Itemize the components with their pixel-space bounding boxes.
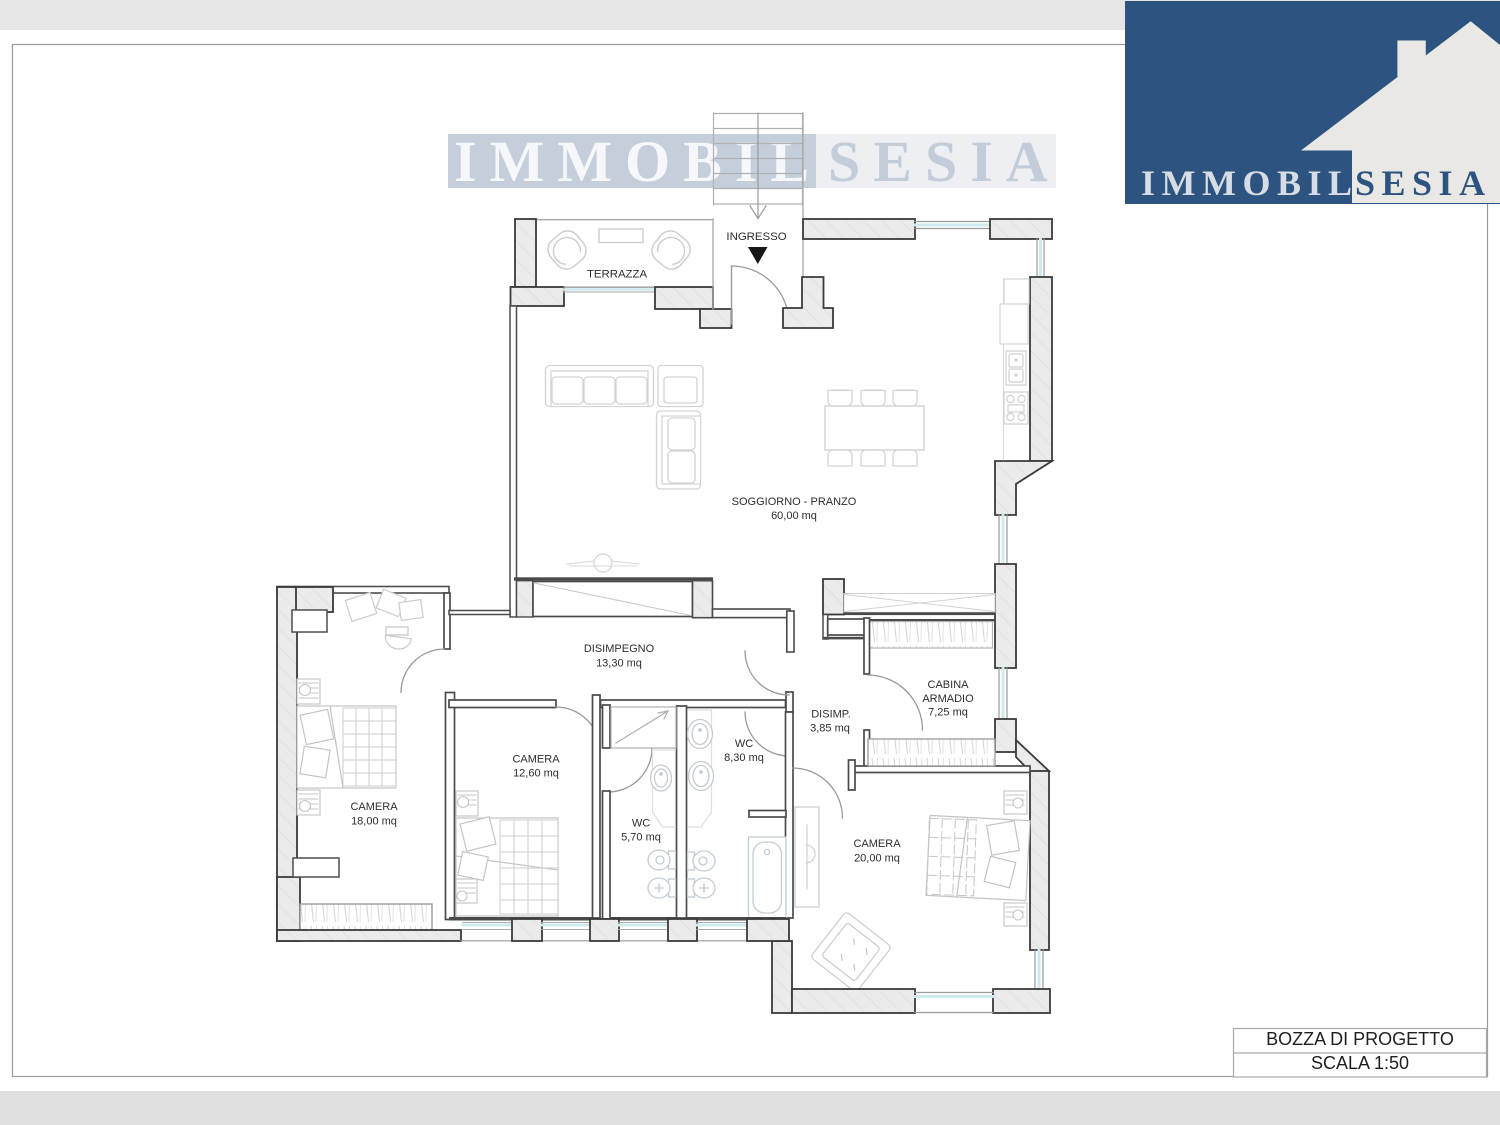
- svg-text:12,60 mq: 12,60 mq: [513, 768, 559, 780]
- svg-text:CAMERA: CAMERA: [512, 754, 560, 766]
- svg-text:5,70 mq: 5,70 mq: [621, 832, 661, 844]
- svg-text:SCALA 1:50: SCALA 1:50: [1311, 1053, 1409, 1073]
- svg-text:SOGGIORNO - PRANZO: SOGGIORNO - PRANZO: [732, 496, 857, 508]
- svg-text:60,00 mq: 60,00 mq: [771, 510, 817, 522]
- svg-text:IMMOBIL: IMMOBIL: [454, 129, 822, 194]
- svg-text:8,30 mq: 8,30 mq: [724, 752, 764, 764]
- svg-text:SESIA: SESIA: [1355, 163, 1492, 203]
- svg-text:CABINA: CABINA: [928, 679, 970, 691]
- svg-text:TERRAZZA: TERRAZZA: [587, 269, 648, 281]
- svg-text:IMMOBIL: IMMOBIL: [1141, 163, 1359, 203]
- svg-text:DISIMP.: DISIMP.: [811, 709, 851, 721]
- svg-text:BOZZA DI PROGETTO: BOZZA DI PROGETTO: [1266, 1029, 1454, 1049]
- svg-text:INGRESSO: INGRESSO: [726, 231, 786, 243]
- svg-text:WC: WC: [632, 818, 650, 830]
- svg-text:DISIMPEGNO: DISIMPEGNO: [584, 643, 655, 655]
- svg-text:ARMADIO: ARMADIO: [922, 693, 974, 705]
- svg-text:3,85 mq: 3,85 mq: [810, 723, 850, 735]
- svg-text:CAMERA: CAMERA: [853, 838, 901, 850]
- svg-text:7,25 mq: 7,25 mq: [928, 707, 968, 719]
- svg-text:13,30 mq: 13,30 mq: [596, 658, 642, 670]
- svg-text:20,00 mq: 20,00 mq: [854, 853, 900, 865]
- svg-text:CAMERA: CAMERA: [350, 801, 398, 813]
- svg-text:WC: WC: [735, 738, 753, 750]
- svg-text:18,00 mq: 18,00 mq: [351, 816, 397, 828]
- svg-text:SESIA: SESIA: [828, 129, 1061, 194]
